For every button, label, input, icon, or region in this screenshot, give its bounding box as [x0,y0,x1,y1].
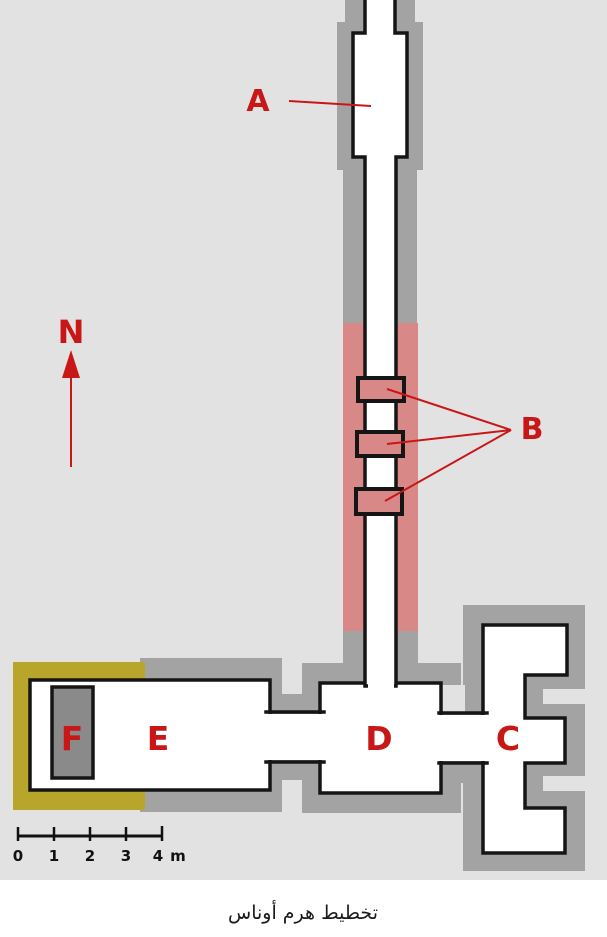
label-f: F [61,719,84,758]
portcullis-block-2 [357,432,403,456]
masonry-notch [282,656,302,694]
label-c: C [496,719,520,758]
portcullis-block-3 [356,489,402,514]
masonry-notch [543,689,587,704]
label-b: B [521,412,544,447]
scale-label-0: 0 [13,847,23,865]
label-d: D [365,719,392,758]
masonry-notch [441,685,465,713]
scale-label-3: 3 [121,847,131,865]
pyramid-plan-figure: N A B C D E F 0 1 2 3 4 m تخطيط هرم أونا… [0,0,607,937]
masonry-notch [543,776,587,791]
label-e: E [147,719,170,758]
masonry-notch [282,780,302,812]
portcullis-block-1 [358,378,404,401]
north-label: N [58,313,85,351]
scale-label-4: 4 [153,847,163,865]
corridor-opening [368,680,394,690]
scale-label-2: 2 [85,847,95,865]
plan-canvas: N A B C D E F 0 1 2 3 4 m تخطيط هرم أونا… [0,0,607,937]
figure-caption: تخطيط هرم أوناس [228,900,378,924]
passage-e-d [264,714,326,760]
passage-d-c [437,715,487,761]
scale-unit: m [170,847,186,865]
label-a: A [246,84,270,119]
scale-label-1: 1 [49,847,59,865]
